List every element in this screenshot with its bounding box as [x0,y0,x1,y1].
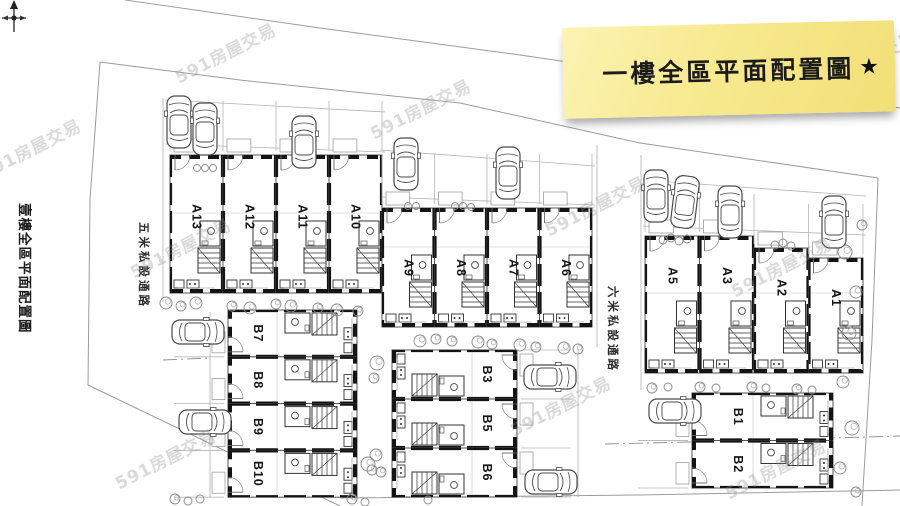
unit-label-A7: A7 [506,259,520,277]
tree-icon [514,339,526,351]
tree-icon [190,297,202,309]
tree-icon [196,495,204,503]
tree-icon [695,382,705,392]
tree-icon [558,342,570,354]
tree-icon [361,457,375,471]
unit-label-A9: A9 [401,259,415,277]
tree-icon [170,494,180,504]
car-icon [642,170,671,222]
tree-icon [834,462,846,474]
car-icon [172,318,224,347]
road-5m-label: 五米私設通路 [136,222,152,309]
car-icon [667,174,702,229]
tree-icon [184,497,192,505]
tree-icon [271,299,281,309]
north-compass-icon [0,0,28,36]
tree-icon [712,384,720,392]
unit-label-B3: B3 [480,366,494,384]
tree-icon [361,498,369,506]
tree-icon [664,383,672,391]
road-6m-label: 六米私設通路 [605,286,621,373]
unit-label-B10: B10 [251,461,265,487]
unit-label-A2: A2 [774,279,788,297]
unit-label-B1: B1 [731,408,745,426]
car-icon [820,196,849,248]
unit-label-A3: A3 [720,267,734,285]
tree-icon [487,339,497,349]
unit-label-A11: A11 [296,204,310,229]
unit-A12: A12 [223,101,276,293]
tree-icon [837,376,849,388]
car-icon [392,138,421,190]
car-icon [525,468,577,497]
unit-label-A6: A6 [559,259,573,277]
tree-icon [647,383,657,393]
star-icon: ★ [859,53,879,79]
tree-icon [447,336,457,346]
unit-label-A5: A5 [665,267,679,285]
car-icon [649,397,701,426]
car-icon [191,103,220,155]
unit-A2: A2 [754,194,809,373]
tree-icon [414,335,426,347]
car-icon [716,186,745,238]
tree-icon [762,384,770,392]
unit-B5: B5 [392,399,571,448]
tree-icon [472,336,484,348]
unit-label-A8: A8 [454,259,468,277]
car-icon [494,147,523,199]
car-icon [179,408,231,437]
tree-icon [369,373,379,383]
page-title-vertical: 壹樓全區平面配置圖 [16,203,36,334]
tree-icon [747,382,757,392]
unit-label-A12: A12 [243,204,257,230]
site-plan-page: A13A12A11A10A9A8A7A6A5A3A2A1B7B8B9B10B3B… [0,0,900,506]
unit-label-B9: B9 [251,418,265,436]
unit-B8: B8 [174,357,357,404]
tree-icon [370,356,384,370]
car-icon [165,96,194,148]
unit-A6: A6 [540,154,593,327]
unit-B2: B2 [638,441,833,489]
unit-label-A13: A13 [190,204,204,230]
unit-label-B7: B7 [251,324,265,342]
unit-label-B5: B5 [480,415,494,433]
tree-icon [431,334,441,344]
tree-icon [176,301,186,311]
unit-A8: A8 [435,154,488,327]
unit-A10: A10 [329,101,382,293]
unit-B10: B10 [174,450,357,497]
sticky-note-title: 一樓全區平面配置圖 [602,49,855,91]
tree-icon [160,297,172,309]
tree-icon [531,342,541,352]
car-icon [524,363,576,392]
tree-icon [376,467,386,477]
tree-icon [857,220,867,230]
unit-label-B6: B6 [480,464,494,482]
tree-icon [851,487,861,497]
car-icon [290,116,319,168]
unit-label-A1: A1 [829,289,843,307]
unit-label-B2: B2 [731,455,745,473]
sticky-note: 一樓全區平面配置圖 ★ [562,20,896,119]
tree-icon [845,421,859,435]
unit-label-B8: B8 [251,371,265,389]
unit-label-A10: A10 [349,204,363,230]
